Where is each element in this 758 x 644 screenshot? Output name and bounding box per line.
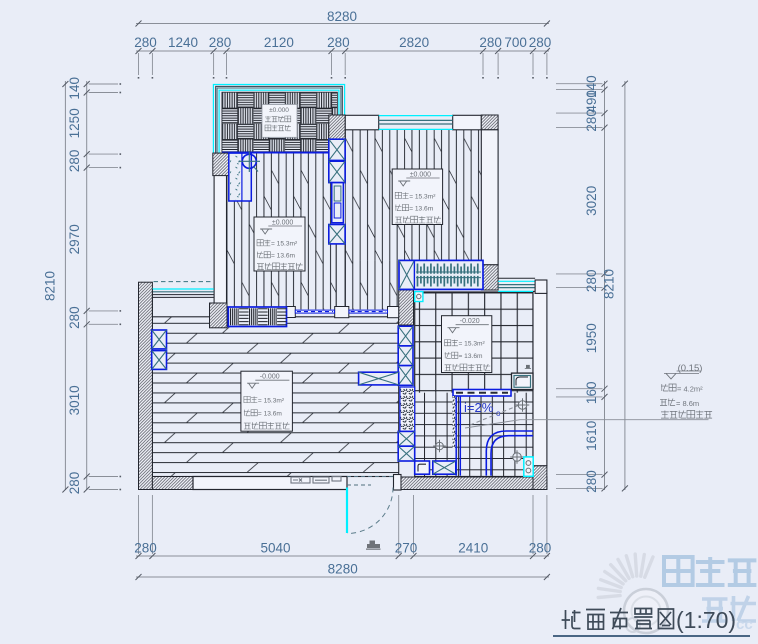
svg-text:±0.000: ±0.000 [272,220,293,227]
svg-text:5040: 5040 [260,541,290,556]
svg-text:280: 280 [134,35,157,50]
svg-text:= 15.3m²: = 15.3m² [409,193,436,200]
svg-text:2120: 2120 [264,35,294,50]
svg-text:cc: cc [736,616,753,633]
svg-text:i=2%: i=2% [464,400,494,415]
svg-text:280: 280 [327,35,350,50]
svg-text:280: 280 [584,109,599,132]
svg-text:270: 270 [395,541,418,556]
svg-text:-0.000: -0.000 [260,374,280,381]
svg-text:1250: 1250 [67,108,82,138]
svg-text:= 15.3m²: = 15.3m² [258,397,285,404]
svg-text:160: 160 [584,382,599,405]
svg-text:= 13.6m: = 13.6m [258,411,283,418]
svg-text:±0.000: ±0.000 [269,107,289,114]
svg-text:280: 280 [529,35,552,50]
svg-text:8210: 8210 [43,271,58,301]
svg-text:= 15.3m²: = 15.3m² [459,341,486,348]
svg-text:280: 280 [67,472,82,495]
svg-text:280: 280 [67,150,82,173]
svg-text:8280: 8280 [327,9,357,24]
svg-text:280: 280 [134,541,157,556]
svg-text:8280: 8280 [328,562,358,577]
svg-text:8210: 8210 [602,269,617,299]
svg-text:= 8.6m: = 8.6m [676,399,699,408]
svg-text:= 13.6m: = 13.6m [409,206,434,213]
svg-text:-0.020: -0.020 [460,318,480,325]
svg-text:1240: 1240 [168,35,198,50]
svg-text:= 13.6m: = 13.6m [271,253,296,260]
svg-text:1950: 1950 [584,323,599,353]
svg-text:280: 280 [584,470,599,493]
svg-text:2970: 2970 [67,224,82,254]
svg-text:= 15.3m²: = 15.3m² [271,241,298,248]
svg-text:280: 280 [479,35,502,50]
svg-text:1610: 1610 [584,421,599,451]
svg-text:280: 280 [529,541,552,556]
svg-text:(0.15): (0.15) [678,363,703,374]
svg-text:280: 280 [584,270,599,293]
svg-text:= 13.6m: = 13.6m [459,353,484,360]
svg-text:700: 700 [504,35,527,50]
svg-text:3010: 3010 [67,385,82,415]
svg-text:±0.000: ±0.000 [410,172,431,179]
svg-text:3020: 3020 [584,186,599,216]
svg-text:(1:70): (1:70) [676,607,736,633]
svg-text:2820: 2820 [399,35,429,50]
svg-text:140: 140 [67,77,82,100]
svg-text:280: 280 [209,35,232,50]
svg-text:280: 280 [67,306,82,329]
svg-text:2410: 2410 [458,541,488,556]
svg-text:= 4.2m²: = 4.2m² [677,384,703,393]
